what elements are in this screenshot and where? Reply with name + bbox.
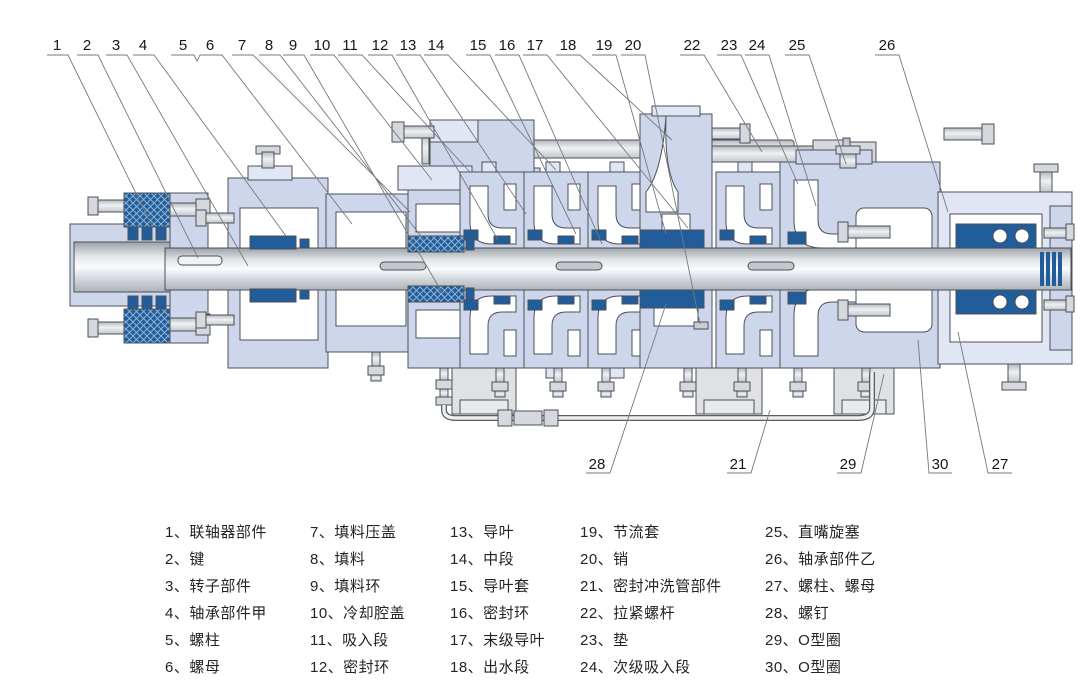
legend-item: 22、拉紧螺杆 — [580, 600, 722, 627]
callout-number-7: 7 — [238, 37, 246, 54]
legend-item: 18、出水段 — [450, 654, 545, 681]
callout-number-16: 16 — [499, 37, 516, 54]
legend-item: 2、键 — [165, 546, 267, 573]
callout-number-9: 9 — [289, 37, 297, 54]
legend-item: 16、密封环 — [450, 600, 545, 627]
callout-number-18: 18 — [560, 37, 577, 54]
throttle-sleeve — [640, 230, 704, 248]
callout-number-5: 5 — [179, 37, 187, 54]
callout-number-1: 1 — [53, 37, 61, 54]
packing-top — [408, 236, 464, 252]
legend-item: 24、次级吸入段 — [580, 654, 722, 681]
callout-number-4: 4 — [139, 37, 147, 54]
pipe-union — [498, 410, 512, 426]
legend-item: 9、填料环 — [310, 573, 405, 600]
callout-number-27: 27 — [992, 456, 1009, 473]
legend-item: 29、O型圈 — [765, 627, 876, 654]
legend-item: 25、直嘴旋塞 — [765, 519, 876, 546]
legend-item: 14、中段 — [450, 546, 545, 573]
shaft — [165, 248, 1071, 290]
pump-diagram-page: 1234567891011121314151617181920222324252… — [0, 0, 1084, 687]
pin — [694, 322, 708, 329]
legend-item: 10、冷却腔盖 — [310, 600, 405, 627]
pipe-union — [514, 411, 542, 425]
legend-column-5: 25、直嘴旋塞26、轴承部件乙27、螺柱、螺母28、螺钉29、O型圈30、O型圈 — [765, 519, 876, 681]
legend-item: 17、末级导叶 — [450, 627, 545, 654]
legend-item: 8、填料 — [310, 546, 405, 573]
callout-number-14: 14 — [428, 37, 445, 54]
legend-column-3: 13、导叶14、中段15、导叶套16、密封环17、末级导叶18、出水段 — [450, 519, 545, 681]
legend-item: 23、垫 — [580, 627, 722, 654]
callout-number-29: 29 — [840, 456, 857, 473]
callout-number-23: 23 — [721, 37, 738, 54]
shaft-key — [178, 256, 222, 265]
legend-item: 26、轴承部件乙 — [765, 546, 876, 573]
callout-number-25: 25 — [789, 37, 806, 54]
callout-number-17: 17 — [527, 37, 544, 54]
legend-column-2: 7、填料压盖8、填料9、填料环10、冷却腔盖11、吸入段12、密封环 — [310, 519, 405, 681]
pipe-union — [544, 410, 558, 426]
legend-item: 27、螺柱、螺母 — [765, 573, 876, 600]
callout-leader-5 — [171, 55, 200, 61]
callout-number-20: 20 — [625, 37, 642, 54]
callout-number-10: 10 — [314, 37, 331, 54]
callout-number-12: 12 — [372, 37, 389, 54]
legend-item: 20、销 — [580, 546, 722, 573]
callout-number-22: 22 — [684, 37, 701, 54]
callout-number-6: 6 — [206, 37, 214, 54]
legend-item: 12、密封环 — [310, 654, 405, 681]
legend-item: 28、螺钉 — [765, 600, 876, 627]
packing-bottom — [408, 286, 464, 302]
legend-item: 3、转子部件 — [165, 573, 267, 600]
legend-item: 6、螺母 — [165, 654, 267, 681]
callout-number-19: 19 — [596, 37, 613, 54]
callout-number-24: 24 — [749, 37, 766, 54]
callout-number-15: 15 — [470, 37, 487, 54]
legend-item: 7、填料压盖 — [310, 519, 405, 546]
parts-legend: 1、联轴器部件2、键3、转子部件4、轴承部件甲5、螺柱6、螺母7、填料压盖8、填… — [0, 519, 1084, 679]
callout-number-13: 13 — [400, 37, 417, 54]
legend-item: 15、导叶套 — [450, 573, 545, 600]
support-feet — [452, 368, 894, 414]
callout-number-2: 2 — [83, 37, 91, 54]
pump-body — [70, 106, 1074, 426]
legend-item: 21、密封冲洗管部件 — [580, 573, 722, 600]
callout-number-30: 30 — [932, 456, 949, 473]
legend-item: 13、导叶 — [450, 519, 545, 546]
legend-item: 1、联轴器部件 — [165, 519, 267, 546]
callout-number-28: 28 — [589, 456, 606, 473]
callout-number-21: 21 — [730, 456, 747, 473]
legend-column-4: 19、节流套20、销21、密封冲洗管部件22、拉紧螺杆23、垫24、次级吸入段 — [580, 519, 722, 681]
legend-item: 30、O型圈 — [765, 654, 876, 681]
legend-item: 4、轴承部件甲 — [165, 600, 267, 627]
legend-item: 19、节流套 — [580, 519, 722, 546]
callout-number-8: 8 — [265, 37, 273, 54]
callout-number-11: 11 — [342, 37, 358, 54]
legend-item: 5、螺柱 — [165, 627, 267, 654]
legend-column-1: 1、联轴器部件2、键3、转子部件4、轴承部件甲5、螺柱6、螺母 — [165, 519, 267, 681]
legend-item: 11、吸入段 — [310, 627, 405, 654]
callout-number-3: 3 — [112, 37, 120, 54]
drain-valve — [436, 368, 452, 405]
callout-number-26: 26 — [879, 37, 896, 54]
